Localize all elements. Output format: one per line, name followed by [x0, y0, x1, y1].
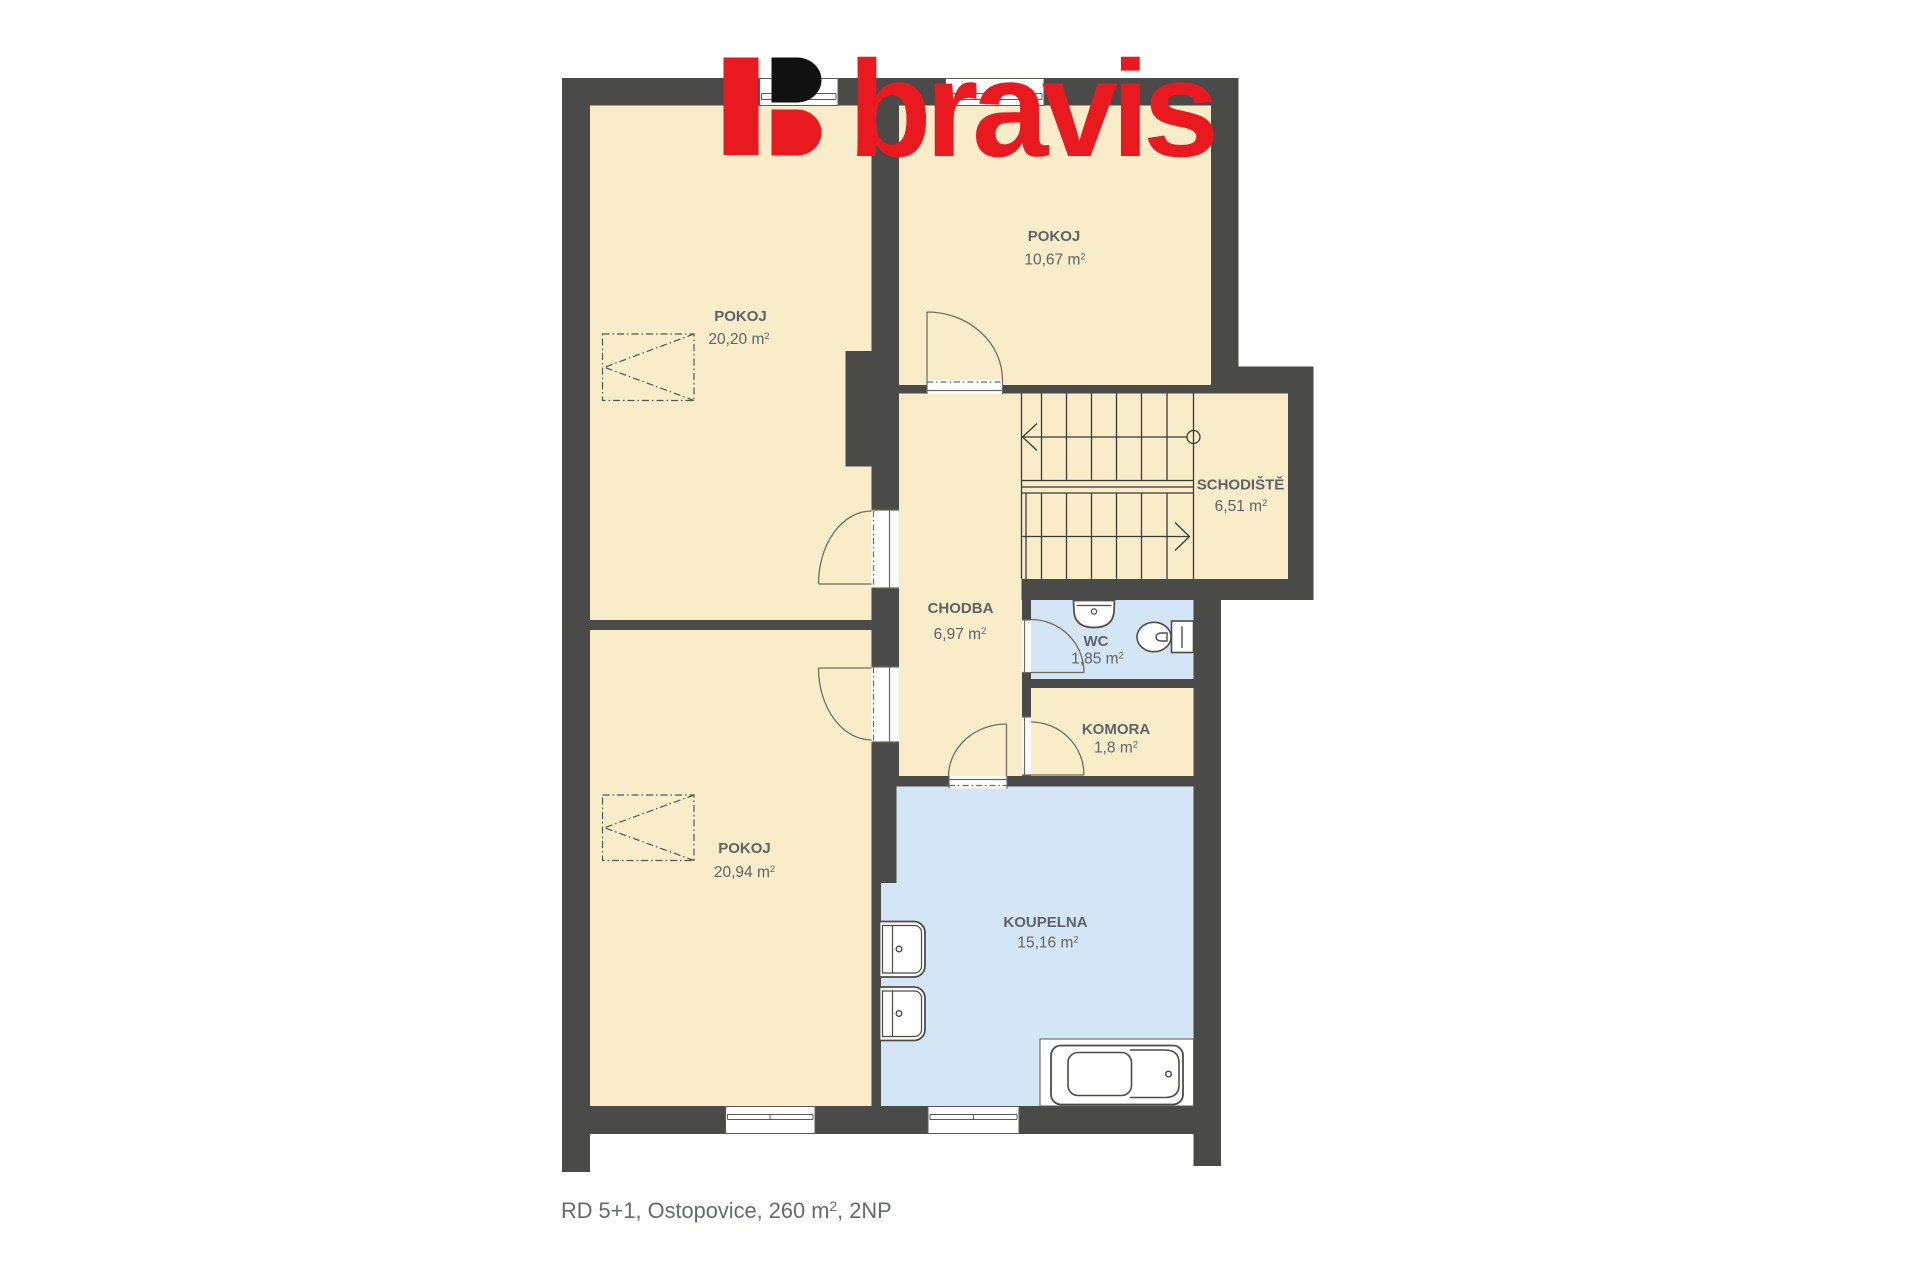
- svg-text:1,85 m2: 1,85 m2: [1071, 651, 1124, 668]
- svg-text:WC: WC: [1084, 633, 1109, 650]
- svg-text:6,97 m2: 6,97 m2: [934, 626, 987, 643]
- svg-text:POKOJ: POKOJ: [1028, 228, 1081, 245]
- svg-text:bravis: bravis: [848, 33, 1214, 186]
- svg-text:POKOJ: POKOJ: [718, 840, 771, 857]
- svg-text:SCHODIŠTĚ: SCHODIŠTĚ: [1197, 476, 1285, 494]
- svg-text:6,51 m2: 6,51 m2: [1215, 498, 1268, 515]
- svg-text:CHODBA: CHODBA: [928, 600, 994, 617]
- svg-text:20,20 m2: 20,20 m2: [708, 331, 769, 348]
- svg-text:POKOJ: POKOJ: [714, 308, 767, 325]
- svg-text:RD 5+1, Ostopovice, 260 m2, 2N: RD 5+1, Ostopovice, 260 m2, 2NP: [561, 1198, 892, 1223]
- svg-text:15,16 m2: 15,16 m2: [1017, 935, 1078, 952]
- svg-text:10,67 m2: 10,67 m2: [1024, 252, 1085, 269]
- svg-text:KOMORA: KOMORA: [1082, 721, 1150, 738]
- svg-text:20,94 m2: 20,94 m2: [714, 864, 775, 881]
- svg-text:1,8 m2: 1,8 m2: [1094, 740, 1138, 757]
- svg-text:KOUPELNA: KOUPELNA: [1003, 914, 1087, 931]
